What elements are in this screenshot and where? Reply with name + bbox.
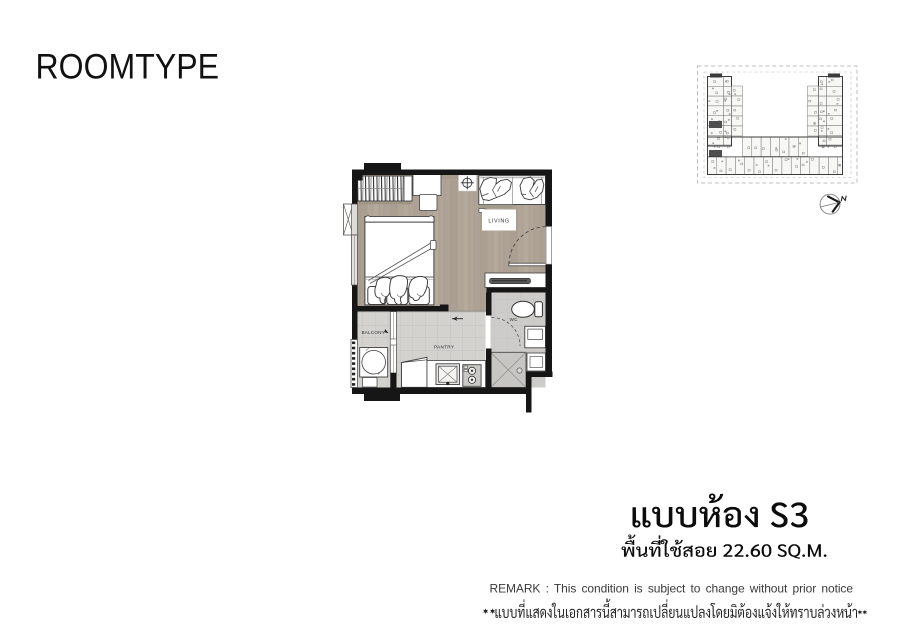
svg-text:REMARK : This condition is su: REMARK : This condition is subject to ch… bbox=[490, 582, 854, 596]
svg-text:PANTRY: PANTRY bbox=[434, 345, 455, 351]
svg-text:WC: WC bbox=[510, 317, 519, 322]
svg-text:BALCONY: BALCONY bbox=[362, 330, 386, 335]
svg-text:LIVING: LIVING bbox=[488, 219, 509, 225]
svg-text:ROOMTYPE: ROOMTYPE bbox=[36, 47, 220, 87]
